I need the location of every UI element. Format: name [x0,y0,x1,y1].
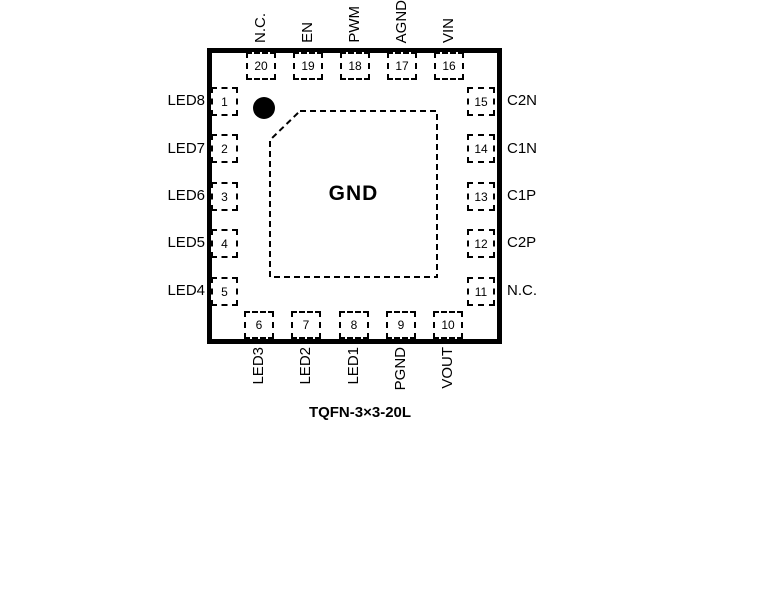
pin-15-number: 15 [474,96,487,108]
package-caption: TQFN-3×3-20L [230,404,490,421]
pin1-indicator-dot [253,97,275,119]
pin-11-pad: 11 [467,277,495,306]
pin-8-label: LED1 [346,347,362,385]
pin-14-pad: 14 [467,134,495,163]
pin-4-label: LED5 [120,234,205,252]
pin-7-label: LED2 [298,347,314,385]
pin-17-pad: 17 [387,52,417,80]
pin-3-number: 3 [221,191,228,203]
pin-17-label: AGND [394,0,410,43]
pin-20-label: N.C. [253,13,269,43]
pin-8-pad: 8 [339,311,369,339]
pin-9-label: PGND [393,347,409,390]
pin-15-label: C2N [507,92,537,110]
pin-19-pad: 19 [293,52,323,80]
pin-17-number: 17 [395,60,408,72]
pin-9-number: 9 [398,319,405,331]
pin-3-pad: 3 [211,182,238,211]
pin-20-pad: 20 [246,52,276,80]
pin-7-pad: 7 [291,311,321,339]
pin-5-number: 5 [221,286,228,298]
pin-6-number: 6 [256,319,263,331]
pin-8-number: 8 [351,319,358,331]
pin-18-number: 18 [348,60,361,72]
pin-10-pad: 10 [433,311,463,339]
pin-6-pad: 6 [244,311,274,339]
pin-14-label: C1N [507,140,537,158]
pin-11-number: 11 [475,286,487,298]
pin-10-number: 10 [441,319,454,331]
pin-12-number: 12 [474,238,487,250]
pin-15-pad: 15 [467,87,495,116]
pin-5-label: LED4 [120,282,205,300]
pin-3-label: LED6 [120,187,205,205]
pin-16-number: 16 [442,60,455,72]
pin-12-pad: 12 [467,229,495,258]
pin-10-label: VOUT [440,347,456,389]
pin-1-label: LED8 [120,92,205,110]
pin-12-label: C2P [507,234,536,252]
pin-7-number: 7 [303,319,310,331]
pin-2-pad: 2 [211,134,238,163]
pin-6-label: LED3 [251,347,267,385]
pin-1-pad: 1 [211,87,238,116]
pin-16-label: VIN [441,18,457,43]
pin-2-number: 2 [221,143,228,155]
pin-9-pad: 9 [386,311,416,339]
pin-2-label: LED7 [120,140,205,158]
pin-19-label: EN [300,22,316,43]
pinout-diagram: GND 20 19 18 17 16 1 2 3 4 5 15 14 13 12… [0,0,771,616]
pin-4-pad: 4 [211,229,238,258]
pin-18-label: PWM [347,6,363,43]
pin-16-pad: 16 [434,52,464,80]
pin-18-pad: 18 [340,52,370,80]
pin-20-number: 20 [254,60,267,72]
pin-11-label: N.C. [507,282,537,300]
pin-19-number: 19 [301,60,314,72]
exposed-pad-label: GND [269,110,438,278]
pin-1-number: 1 [221,96,228,108]
pin-5-pad: 5 [211,277,238,306]
pin-4-number: 4 [221,238,228,250]
pin-13-pad: 13 [467,182,495,211]
pin-13-number: 13 [474,191,487,203]
pin-14-number: 14 [474,143,487,155]
pin-13-label: C1P [507,187,536,205]
